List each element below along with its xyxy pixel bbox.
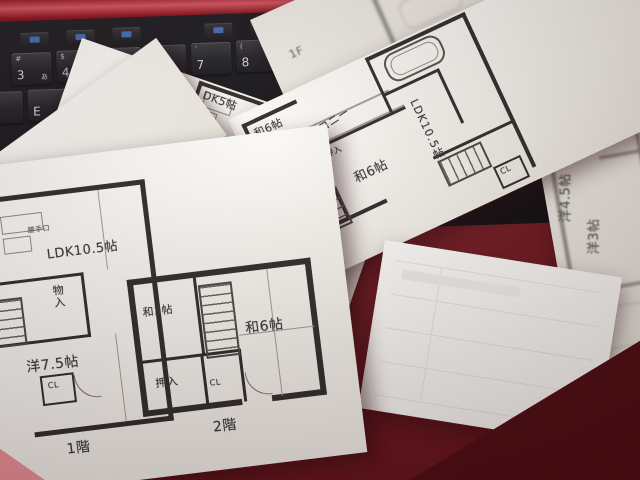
fn-key xyxy=(204,23,232,38)
key-w: W xyxy=(0,91,24,124)
floor-tag-1f: 1F xyxy=(287,44,305,62)
room-label-washitsu6-main: 和6帖 xyxy=(350,154,390,186)
photo-floorplans-on-laptop: # 3 あ $ 4 % 5 & 6 ' 7 ( 8 W E xyxy=(0,0,640,480)
floor-label-1kai: 1階 xyxy=(65,436,91,459)
key-4-shift: $ xyxy=(60,53,65,61)
room-label-katteguchi: 勝手口 xyxy=(27,223,51,236)
room-label-front2-cl: CL xyxy=(209,377,221,387)
paper-sheet-front: LDK10.5帖 勝手口 物入 洋7.5帖 CL 1階 和3帖 押入 CL 和6 xyxy=(0,124,367,480)
room-label-front-cl: CL xyxy=(47,380,59,390)
room-label-youshitsu45: 洋4.5帖 xyxy=(555,173,574,222)
key-e-label: E xyxy=(33,104,41,118)
floorplan-front-2f: 和3帖 押入 CL 和6帖 xyxy=(127,258,327,418)
key-3-label: 3 xyxy=(17,68,25,82)
fn-key-icon xyxy=(30,36,40,42)
key-8-shift: ( xyxy=(240,42,243,50)
key-3: # 3 あ xyxy=(11,52,52,85)
floor-label-2kai: 2階 xyxy=(212,414,238,437)
fn-key-icon xyxy=(213,27,223,33)
key-3-kana: あ xyxy=(41,72,48,82)
key-8-label: 8 xyxy=(241,55,249,69)
key-3-shift: # xyxy=(15,55,21,63)
key-7-shift: ' xyxy=(195,45,197,53)
fn-key xyxy=(112,27,140,42)
key-7: ' 7 xyxy=(191,42,232,75)
fn-key-icon xyxy=(121,31,131,37)
fn-key xyxy=(20,32,48,47)
room-label-front-oshiire: 押入 xyxy=(154,373,179,392)
room-label-washitsu3: 和3帖 xyxy=(142,301,174,321)
room-label-youshitsu3: 洋3帖 xyxy=(583,218,602,254)
room-label-mono-ire: 物入 xyxy=(49,284,68,310)
room-label-front-ldk: LDK10.5帖 xyxy=(46,235,120,263)
key-7-label: 7 xyxy=(196,58,204,72)
room-label-front-washitsu6: 和6帖 xyxy=(244,313,285,338)
room-label-ldk: LDK10.5帖 xyxy=(406,97,448,163)
